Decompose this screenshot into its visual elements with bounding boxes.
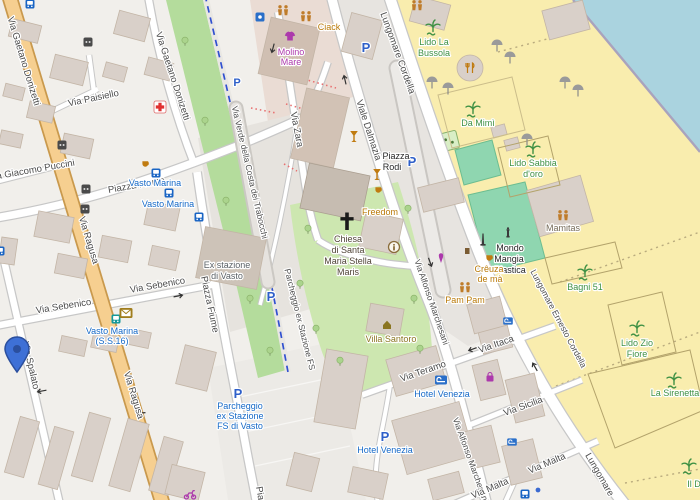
beach-club-label-lido-la-bussola: Bussola [418, 48, 450, 58]
poi-label-mamitas: Mamitas [546, 223, 581, 233]
poi-label-mondo-mangia-plastica: Mondo [496, 243, 524, 253]
beach-club-label-lido-la-bussola: Lido La [419, 37, 449, 47]
level-crossing-icon [82, 185, 91, 194]
beach-club-label-il-d-partial: Il D [687, 479, 700, 489]
bus-station-icon [112, 315, 121, 324]
parking-lot-label: FS di Vasto [217, 421, 263, 431]
hotel-icon [435, 376, 447, 385]
parking-lot-label: Parcheggio [217, 401, 263, 411]
waste-bin-icon [465, 248, 470, 254]
bus-stop-label-vasto-marina-ss16: Vasto Marina [86, 326, 138, 336]
poi-label-chiesa: Maria Stella [324, 256, 372, 266]
poi-label-molino-mare: Mare [281, 57, 302, 67]
poi-label-mondo-mangia-plastica: Mangia [494, 254, 524, 264]
bus-stop-icon [521, 490, 530, 499]
poi-label-hotel-venezia: Hotel Venezia [357, 445, 413, 455]
restaurant-building [457, 55, 483, 81]
poi-dot-icon [536, 488, 541, 493]
bus-stop-icon [26, 0, 35, 8]
poi-label-piazza-rodi: Piazza [382, 151, 409, 161]
info-icon [389, 242, 400, 253]
bus-stop-label-vasto-marina-ss16: (S.S.16) [95, 336, 128, 346]
hostel-icon [503, 317, 513, 324]
poi-label-chiesa: di Santa [331, 245, 364, 255]
poi-label-ciack: Ciack [318, 22, 341, 32]
parking-symbol: P [381, 429, 390, 444]
beach-club-label-bagni-51: Bagni 51 [567, 282, 603, 292]
map-canvas[interactable]: Via Gaetano Donizetti Via Gaetano Donize… [0, 0, 700, 500]
poi-label-ex-stazione: Ex stazione [204, 260, 251, 270]
beach-club-label-la-sirenetta: La Sirenetta [651, 388, 700, 398]
level-crossing-icon [84, 38, 93, 47]
pharmacy-icon [154, 101, 166, 113]
poi-label-molino-mare: Molino [278, 47, 305, 57]
poi-label-creuza-de-ma: Crêuza [474, 264, 503, 274]
beach-club-label-lido-sabbia-doro: d'oro [523, 169, 543, 179]
poi-label-creuza-de-ma: de mà [477, 274, 502, 284]
bus-stop-label-vasto-marina: Vasto Marina [129, 178, 181, 188]
poi-label-pam-pam: Pam Pam [445, 295, 485, 305]
drinking-water-icon [256, 13, 265, 22]
beach-club-label-lido-zio-fiore: Lido Zio [621, 338, 653, 348]
parking-symbol: P [362, 40, 371, 55]
level-crossing-icon [58, 141, 67, 150]
poi-label-hotel-venezia: Hotel Venezia [414, 389, 470, 399]
parking-symbol: P [234, 386, 243, 401]
level-crossing-icon [81, 205, 90, 214]
poi-label-piazza-rodi: Rodi [383, 162, 402, 172]
parking-symbol: P [233, 77, 240, 89]
parking-symbol: P [267, 289, 276, 304]
post-box-icon [120, 308, 133, 318]
bus-stop-icon [165, 189, 174, 198]
villa-santoro-building [366, 303, 404, 336]
parking-lot-label: ex Stazione [216, 411, 263, 421]
poi-label-chiesa: Maris [337, 267, 359, 277]
bus-stop-icon [195, 213, 204, 222]
bus-stop-label-vasto-marina: Vasto Marina [142, 199, 194, 209]
poi-label-ex-stazione: di Vasto [211, 271, 243, 281]
poi-label-chiesa: Chiesa [334, 234, 362, 244]
map-svg[interactable]: Via Gaetano Donizetti Via Gaetano Donize… [0, 0, 700, 500]
beach-club-label-lido-sabbia-doro: Lido Sabbia [509, 158, 557, 168]
poi-label-freedom: Freedom [362, 207, 398, 217]
hostel-icon [507, 438, 517, 445]
beach-club-label-lido-zio-fiore: Fiore [627, 349, 648, 359]
poi-label-villa-santoro: Villa Santoro [366, 334, 417, 344]
beach-club-label-da-mimi: Da Mimì [461, 118, 495, 128]
bus-stop-icon [0, 247, 5, 256]
